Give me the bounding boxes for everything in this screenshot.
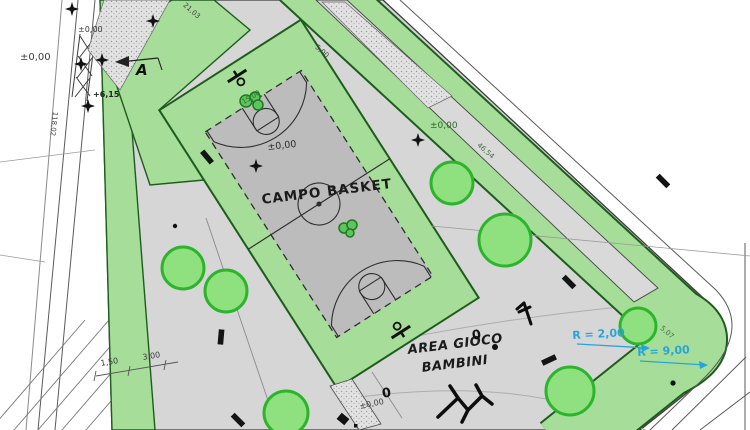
radius-outer-label: R = 9,00 [637, 344, 690, 358]
tree-icon [264, 391, 308, 430]
section-marker-a: A [136, 63, 148, 78]
tree-icon [479, 214, 531, 266]
tree-icon [205, 270, 247, 312]
elevation-stair-top: +6,15 [93, 91, 119, 99]
tree-icon [162, 247, 204, 289]
dim-road-west-length: 118,02 [48, 111, 58, 136]
tree-icon [546, 367, 594, 415]
street-lamp-icon [81, 99, 95, 113]
street-lamp-icon [74, 57, 88, 71]
elevation-path-east: ±0,00 [430, 122, 458, 131]
elevation-entrance-path: ±0,00 [78, 26, 103, 34]
radius-inner-label: R = 2,00 [572, 327, 625, 341]
bench-icon [656, 174, 671, 189]
tree-icon [431, 162, 473, 204]
site-plan-canvas: CAMPO BASKET AREA GIOCO BAMBINI A ±0,00 … [0, 0, 750, 430]
elevation-road-west: ±0,00 [20, 53, 51, 63]
